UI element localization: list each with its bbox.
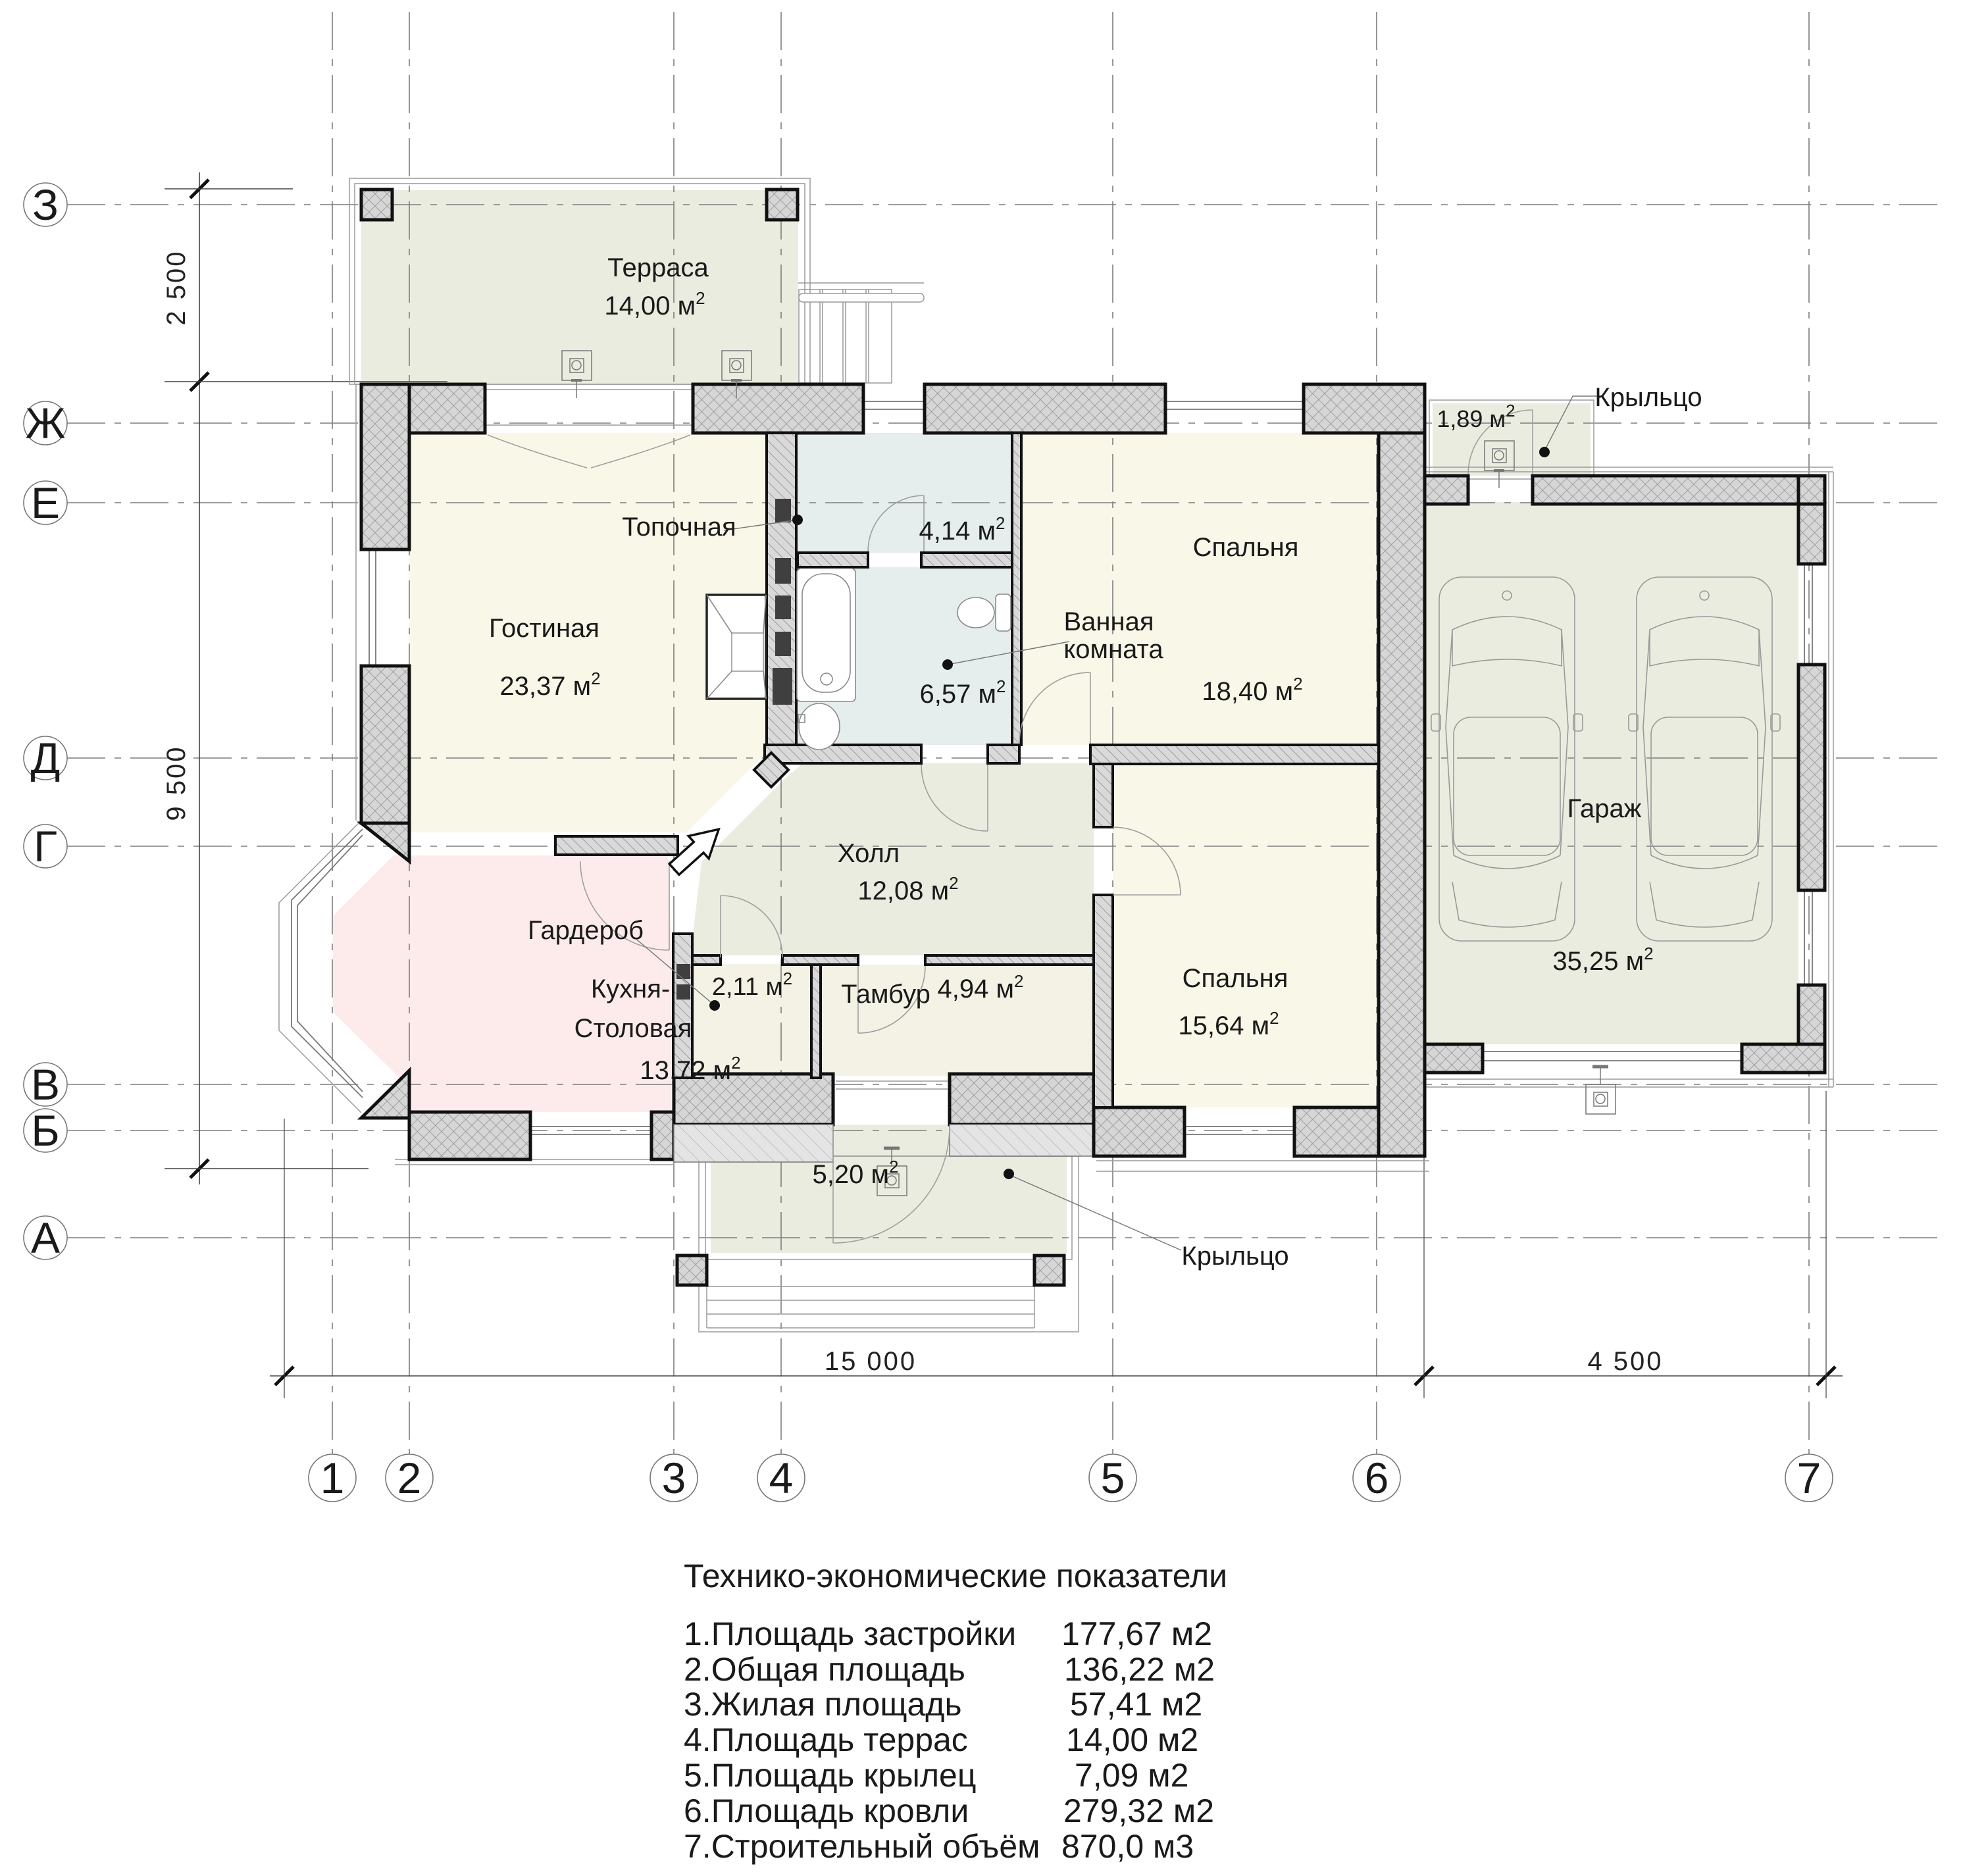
svg-text:14,00 м2: 14,00 м2	[604, 288, 705, 320]
svg-text:Спальня: Спальня	[1193, 533, 1299, 562]
svg-text:6,57 м2: 6,57 м2	[920, 676, 1006, 709]
svg-text:35,25 м2: 35,25 м2	[1552, 944, 1653, 976]
svg-text:7: 7	[1797, 1454, 1821, 1502]
svg-text:177,67 м2: 177,67 м2	[1061, 1615, 1212, 1652]
svg-text:Гардероб: Гардероб	[528, 916, 644, 945]
svg-text:Топочная: Топочная	[622, 513, 736, 542]
svg-text:1.Площадь застройки: 1.Площадь застройки	[684, 1615, 1016, 1652]
svg-text:18,40 м2: 18,40 м2	[1202, 674, 1302, 706]
svg-text:Д: Д	[31, 734, 61, 782]
svg-text:6: 6	[1365, 1454, 1389, 1502]
svg-text:1: 1	[320, 1454, 345, 1502]
svg-text:3: 3	[662, 1454, 686, 1502]
svg-text:Столовая: Столовая	[574, 1014, 692, 1043]
svg-text:комната: комната	[1063, 635, 1163, 664]
svg-text:Г: Г	[34, 822, 57, 871]
svg-text:14,00 м2: 14,00 м2	[1066, 1721, 1198, 1758]
svg-text:15,64 м2: 15,64 м2	[1178, 1008, 1279, 1040]
svg-text:Крыльцо: Крыльцо	[1594, 383, 1702, 412]
svg-text:Технико-экономические показате: Технико-экономические показатели	[684, 1558, 1227, 1594]
svg-text:Кухня-: Кухня-	[591, 975, 670, 1003]
svg-text:Крыльцо: Крыльцо	[1181, 1242, 1288, 1271]
svg-text:136,22 м2: 136,22 м2	[1064, 1651, 1215, 1688]
svg-text:2.Общая площадь: 2.Общая площадь	[684, 1651, 965, 1688]
svg-text:4.Площадь террас: 4.Площадь террас	[684, 1721, 968, 1758]
svg-text:В: В	[31, 1060, 60, 1109]
svg-text:57,41 м2: 57,41 м2	[1070, 1686, 1202, 1723]
svg-text:2 500: 2 500	[162, 249, 191, 325]
svg-text:Б: Б	[31, 1106, 59, 1155]
svg-text:15 000: 15 000	[825, 1347, 917, 1376]
svg-text:5: 5	[1101, 1454, 1125, 1502]
svg-text:13,72 м2: 13,72 м2	[640, 1053, 740, 1085]
svg-text:6.Площадь кровли: 6.Площадь кровли	[684, 1792, 969, 1829]
svg-text:Гостиная: Гостиная	[489, 614, 599, 643]
svg-text:12,08 м2: 12,08 м2	[857, 873, 958, 905]
svg-text:А: А	[31, 1213, 60, 1262]
svg-text:4 500: 4 500	[1587, 1347, 1663, 1376]
svg-text:7,09 м2: 7,09 м2	[1075, 1757, 1188, 1794]
svg-text:2: 2	[397, 1454, 422, 1502]
svg-text:870,0 м3: 870,0 м3	[1061, 1828, 1194, 1865]
svg-text:5.Площадь крылец: 5.Площадь крылец	[684, 1757, 976, 1794]
svg-text:3.Жилая площадь: 3.Жилая площадь	[684, 1686, 962, 1723]
svg-text:7.Строительный объём: 7.Строительный объём	[684, 1828, 1040, 1865]
svg-text:Ж: Ж	[26, 399, 66, 447]
svg-text:Терраса: Терраса	[607, 253, 709, 282]
svg-text:1,89 м2: 1,89 м2	[1437, 401, 1515, 432]
svg-text:З: З	[32, 180, 59, 229]
svg-text:Ванная: Ванная	[1063, 607, 1154, 636]
svg-text:Тамбур: Тамбур	[841, 980, 930, 1009]
svg-text:279,32 м2: 279,32 м2	[1063, 1792, 1214, 1829]
svg-text:Е: Е	[31, 478, 60, 527]
svg-text:4,14 м2: 4,14 м2	[919, 513, 1006, 545]
svg-text:4,94 м2: 4,94 м2	[938, 971, 1024, 1003]
svg-text:9 500: 9 500	[162, 745, 191, 821]
svg-text:Гараж: Гараж	[1567, 794, 1642, 823]
svg-text:23,37 м2: 23,37 м2	[499, 669, 600, 701]
svg-text:Холл: Холл	[838, 839, 900, 868]
svg-text:Спальня: Спальня	[1183, 964, 1288, 993]
svg-text:2,11 м2: 2,11 м2	[712, 969, 792, 1001]
svg-text:4: 4	[769, 1454, 794, 1502]
svg-text:5,20 м2: 5,20 м2	[813, 1157, 899, 1189]
